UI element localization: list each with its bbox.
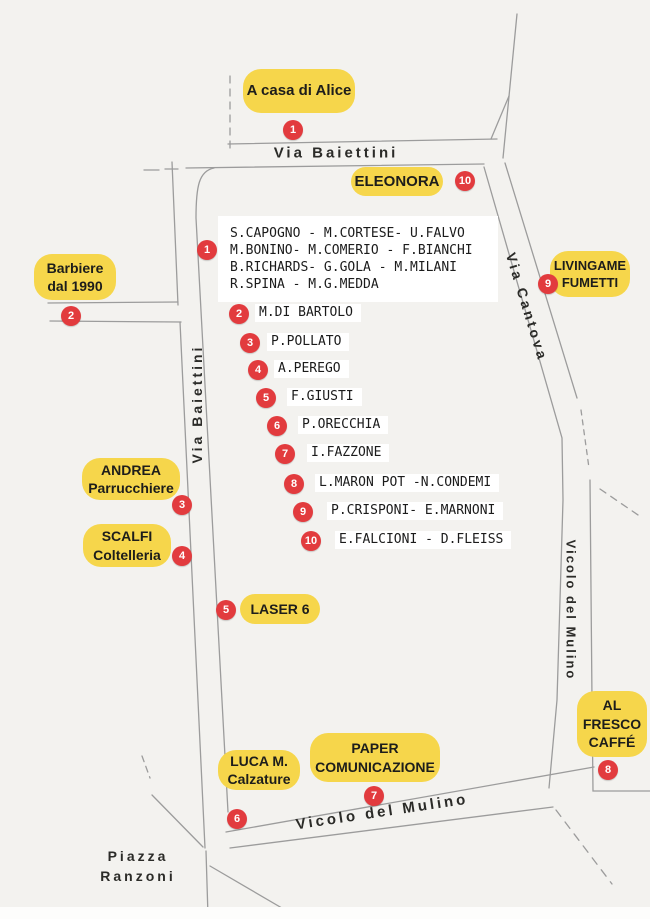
resident-row-name: P.ORECCHIA xyxy=(298,416,388,434)
piazza-line1: Piazza xyxy=(108,848,169,864)
marker-4-row: 4 xyxy=(248,360,268,380)
piazza-line2: Ranzoni xyxy=(100,868,175,884)
pill-label: COMUNICAZIONE xyxy=(310,758,440,776)
pill-label: ELEONORA xyxy=(351,172,443,192)
pill-barbiere-dal-1990: Barbiere dal 1990 xyxy=(34,254,116,300)
square-label-piazza-ranzoni: Piazza Ranzoni xyxy=(100,846,175,886)
pill-scalfi-coltelleria: SCALFI Coltelleria xyxy=(83,524,171,567)
residents-line: B.RICHARDS- G.GOLA - M.MILANI xyxy=(230,259,492,276)
marker-8-row: 8 xyxy=(284,474,304,494)
marker-8-alfresco: 8 xyxy=(598,760,618,780)
resident-row-name: P.POLLATO xyxy=(267,333,349,351)
pill-luca-m-calzature: LUCA M. Calzature xyxy=(218,750,300,790)
marker-1-residents: 1 xyxy=(197,240,217,260)
pill-label: dal 1990 xyxy=(34,277,116,295)
marker-3-row: 3 xyxy=(240,333,260,353)
resident-row-name: L.MARON POT -N.CONDEMI xyxy=(315,474,499,492)
pill-al-fresco-caffe: AL FRESCO CAFFÉ xyxy=(577,691,647,757)
pill-paper-comunicazione: PAPER COMUNICAZIONE xyxy=(310,733,440,782)
pill-label: Coltelleria xyxy=(83,546,171,564)
marker-7-row: 7 xyxy=(275,444,295,464)
pill-eleonora: ELEONORA xyxy=(351,167,443,196)
resident-row-name: I.FAZZONE xyxy=(307,444,389,462)
pill-label: PAPER xyxy=(310,739,440,757)
resident-row-name: P.CRISPONI- E.MARNONI xyxy=(327,502,503,520)
residents-line: M.BONINO- M.COMERIO - F.BIANCHI xyxy=(230,242,492,259)
pill-label: LASER 6 xyxy=(240,600,320,618)
pill-label: Barbiere xyxy=(34,259,116,277)
resident-row-name: E.FALCIONI - D.FLEISS xyxy=(335,531,511,549)
pill-label: LUCA M. xyxy=(218,752,300,770)
street-label-via-cantova: Via Cantova xyxy=(503,251,551,364)
street-label-via-baiettini-top: Via Baiettini xyxy=(274,145,399,162)
pill-label: Parrucchiere xyxy=(82,479,180,497)
marker-2-barbiere: 2 xyxy=(61,306,81,326)
resident-row-name: A.PEREGO xyxy=(274,360,349,378)
marker-4-scalfi: 4 xyxy=(172,546,192,566)
pill-andrea-parrucchiere: ANDREA Parrucchiere xyxy=(82,458,180,500)
pill-livingame-fumetti: LIVINGAME FUMETTI xyxy=(550,251,630,297)
marker-7-paper: 7 xyxy=(364,786,384,806)
marker-1-alice: 1 xyxy=(283,120,303,140)
pill-label: SCALFI xyxy=(83,527,171,545)
photo-bottom-margin xyxy=(0,907,650,919)
pill-laser-6: LASER 6 xyxy=(240,594,320,624)
hand-drawn-street-map: Via Baiettini Via Baiettini Via Cantova … xyxy=(0,0,650,919)
pill-a-casa-di-alice: A casa di Alice xyxy=(243,69,355,113)
marker-9-livingame: 9 xyxy=(538,274,558,294)
resident-row-name: M.DI BARTOLO xyxy=(255,304,361,322)
marker-9-row: 9 xyxy=(293,502,313,522)
marker-5-laser: 5 xyxy=(216,600,236,620)
street-label-vicolo-del-mulino-right: Vicolo del Mulino xyxy=(564,540,579,681)
pill-label: AL xyxy=(577,696,647,714)
marker-3-andrea: 3 xyxy=(172,495,192,515)
marker-6-row: 6 xyxy=(267,416,287,436)
residents-line: R.SPINA - M.G.MEDDA xyxy=(230,276,492,293)
pill-label: LIVINGAME xyxy=(550,257,630,274)
residents-line: S.CAPOGNO - M.CORTESE- U.FALVO xyxy=(230,225,492,242)
pill-label: A casa di Alice xyxy=(243,81,355,101)
marker-2-row: 2 xyxy=(229,304,249,324)
marker-10-row: 10 xyxy=(301,531,321,551)
marker-6-luca: 6 xyxy=(227,809,247,829)
pill-label: CAFFÉ xyxy=(577,733,647,751)
pill-label: FUMETTI xyxy=(550,274,630,291)
pill-label: Calzature xyxy=(218,770,300,788)
pill-label: ANDREA xyxy=(82,461,180,479)
pill-label: FRESCO xyxy=(577,715,647,733)
marker-5-row: 5 xyxy=(256,388,276,408)
marker-10-eleonora: 10 xyxy=(455,171,475,191)
street-label-via-baiettini-left: Via Baiettini xyxy=(189,345,205,464)
resident-row-name: F.GIUSTI xyxy=(287,388,362,406)
residents-box: S.CAPOGNO - M.CORTESE- U.FALVO M.BONINO-… xyxy=(218,216,498,302)
